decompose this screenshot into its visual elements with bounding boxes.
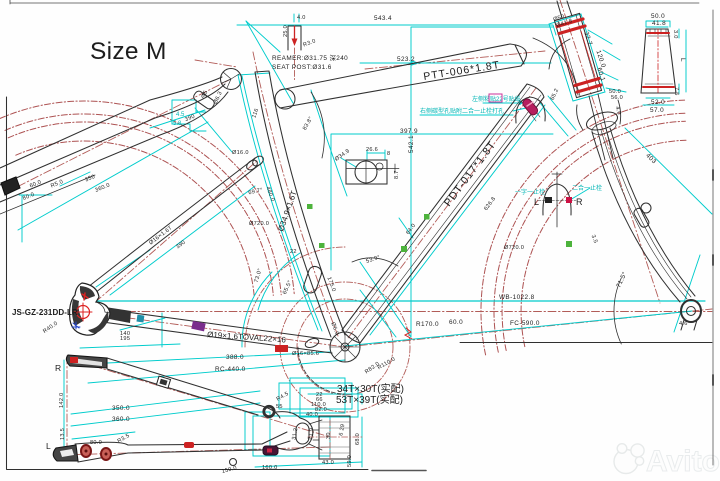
svg-text:L: L — [679, 58, 686, 62]
svg-text:40.0: 40.0 — [306, 412, 318, 418]
svg-text:Avito: Avito — [646, 445, 720, 478]
svg-text:L: L — [46, 441, 51, 451]
svg-text:R170.0: R170.0 — [416, 321, 439, 328]
svg-text:26.6: 26.6 — [366, 147, 378, 153]
svg-text:R: R — [55, 363, 61, 373]
svg-text:397.9: 397.9 — [400, 128, 418, 135]
svg-text:13.5: 13.5 — [60, 428, 66, 440]
svg-text:34T×30T(实配): 34T×30T(实配) — [337, 382, 404, 395]
svg-text:543.4: 543.4 — [374, 15, 392, 22]
svg-text:WB-1022.8: WB-1022.8 — [499, 294, 535, 301]
svg-text:Ø720.0: Ø720.0 — [249, 221, 269, 227]
svg-text:7.5: 7.5 — [673, 87, 679, 96]
svg-text:542.1: 542.1 — [408, 135, 415, 153]
svg-text:SEAT POST:Ø31.6: SEAT POST:Ø31.6 — [272, 64, 332, 71]
svg-text:Ø16.0: Ø16.0 — [232, 150, 249, 156]
svg-text:56.0: 56.0 — [611, 95, 623, 101]
svg-text:57.0: 57.0 — [650, 107, 664, 114]
svg-text:523.2: 523.2 — [397, 56, 415, 63]
svg-text:55: 55 — [276, 404, 283, 410]
svg-text:RC-440.0: RC-440.0 — [215, 366, 246, 373]
svg-text:Size M: Size M — [90, 38, 167, 65]
svg-text:22: 22 — [290, 249, 297, 255]
svg-text:R: R — [576, 197, 583, 207]
svg-text:REAMER:Ø31.75 深240: REAMER:Ø31.75 深240 — [272, 53, 348, 62]
svg-text:3.0: 3.0 — [672, 30, 678, 39]
svg-text:68.0: 68.0 — [355, 433, 361, 445]
svg-text:L: L — [534, 197, 539, 207]
svg-text:195: 195 — [120, 336, 130, 342]
svg-text:Ø16×85.6: Ø16×85.6 — [292, 351, 319, 357]
svg-text:二合一止栓: 二合一止栓 — [572, 184, 602, 192]
svg-text:80.0: 80.0 — [90, 440, 102, 446]
svg-text:142.0: 142.0 — [59, 393, 65, 409]
svg-text:FC-590.0: FC-590.0 — [510, 320, 540, 327]
svg-text:30: 30 — [326, 432, 332, 439]
svg-text:360.0: 360.0 — [112, 416, 130, 423]
svg-text:一字一止栓: 一字一止栓 — [515, 188, 545, 196]
svg-text:JS-GZ-231DD-LR: JS-GZ-231DD-LR — [12, 308, 78, 317]
svg-text:4.0: 4.0 — [297, 15, 306, 21]
svg-text:8.7: 8.7 — [394, 170, 400, 179]
svg-text:53T×39T(实配): 53T×39T(实配) — [336, 393, 403, 406]
svg-text:43.0: 43.0 — [322, 460, 334, 466]
svg-text:60.0: 60.0 — [449, 319, 463, 326]
svg-text:25.0: 25.0 — [283, 25, 289, 37]
svg-text:41.8: 41.8 — [652, 20, 666, 27]
svg-text:5.8: 5.8 — [173, 121, 182, 127]
svg-text:350.0: 350.0 — [112, 405, 130, 412]
svg-text:Ø720.0: Ø720.0 — [504, 245, 524, 251]
svg-text:388.0: 388.0 — [226, 354, 244, 361]
svg-text:4.6: 4.6 — [679, 321, 688, 327]
svg-text:50.0: 50.0 — [651, 13, 665, 20]
svg-text:59.0: 59.0 — [347, 455, 353, 467]
svg-text:160.0: 160.0 — [262, 465, 278, 471]
svg-text:52.0: 52.0 — [651, 99, 665, 106]
svg-text:8: 8 — [387, 151, 390, 157]
svg-text:右侧碳型孔贴附二合一止栓打孔: 右侧碳型孔贴附二合一止栓打孔 — [420, 107, 504, 115]
